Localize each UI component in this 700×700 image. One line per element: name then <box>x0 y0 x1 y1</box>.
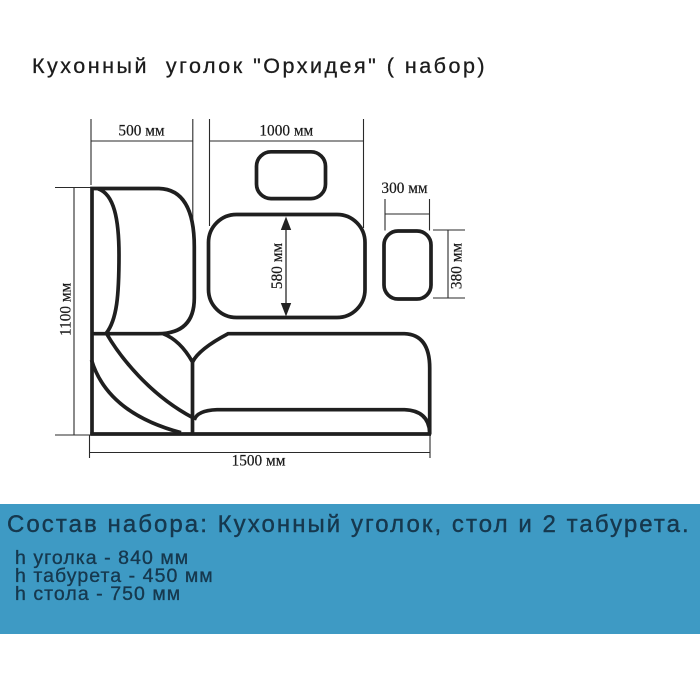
svg-text:1000 мм: 1000 мм <box>259 123 313 140</box>
svg-text:380 мм: 380 мм <box>449 243 466 289</box>
svg-text:580 мм: 580 мм <box>269 243 286 289</box>
svg-text:500 мм: 500 мм <box>118 123 164 140</box>
svg-text:1100 мм: 1100 мм <box>58 282 75 336</box>
svg-text:1500 мм: 1500 мм <box>232 453 286 470</box>
svg-text:300 мм: 300 мм <box>381 180 427 197</box>
